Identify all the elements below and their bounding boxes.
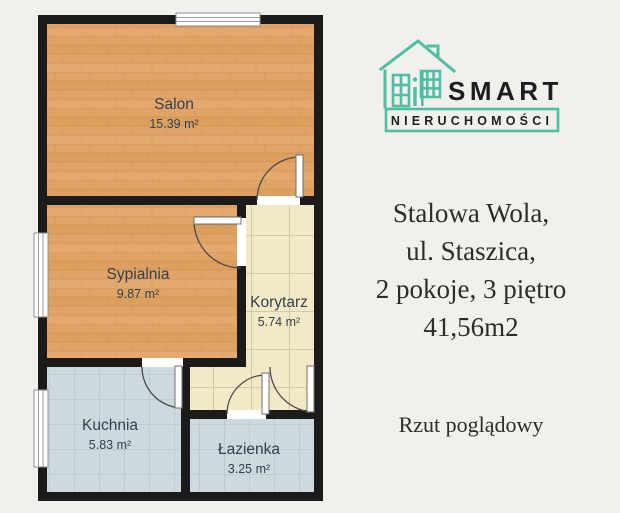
- corridor-floor-upper: [246, 205, 314, 410]
- window-top: [176, 13, 260, 26]
- agency-logo: SMART NIERUCHOMOŚCI: [372, 34, 570, 136]
- kitchen-floor: [47, 367, 181, 492]
- plan-caption: Rzut poglądowy: [322, 412, 620, 438]
- window-left-bedroom: [34, 233, 48, 317]
- listing-street: ul. Staszica,: [322, 232, 620, 270]
- listing-details: Stalowa Wola, ul. Staszica, 2 pokoje, 3 …: [322, 194, 620, 346]
- brand-subtitle: NIERUCHOMOŚCI: [391, 113, 553, 128]
- bedroom-floor: [47, 205, 237, 358]
- listing-city: Stalowa Wola,: [322, 194, 620, 232]
- bathroom-floor: [190, 419, 314, 492]
- monogram-bip-icon: [393, 71, 440, 106]
- salon-floor: [47, 24, 314, 196]
- window-left-kitchen: [34, 390, 48, 467]
- brand-name: SMART: [448, 76, 563, 106]
- listing-area: 41,56m2: [322, 308, 620, 346]
- agency-logo-graphic: SMART NIERUCHOMOŚCI: [372, 34, 570, 136]
- corridor-floor-lower: [190, 367, 246, 410]
- listing-rooms-floor: 2 pokoje, 3 piętro: [322, 270, 620, 308]
